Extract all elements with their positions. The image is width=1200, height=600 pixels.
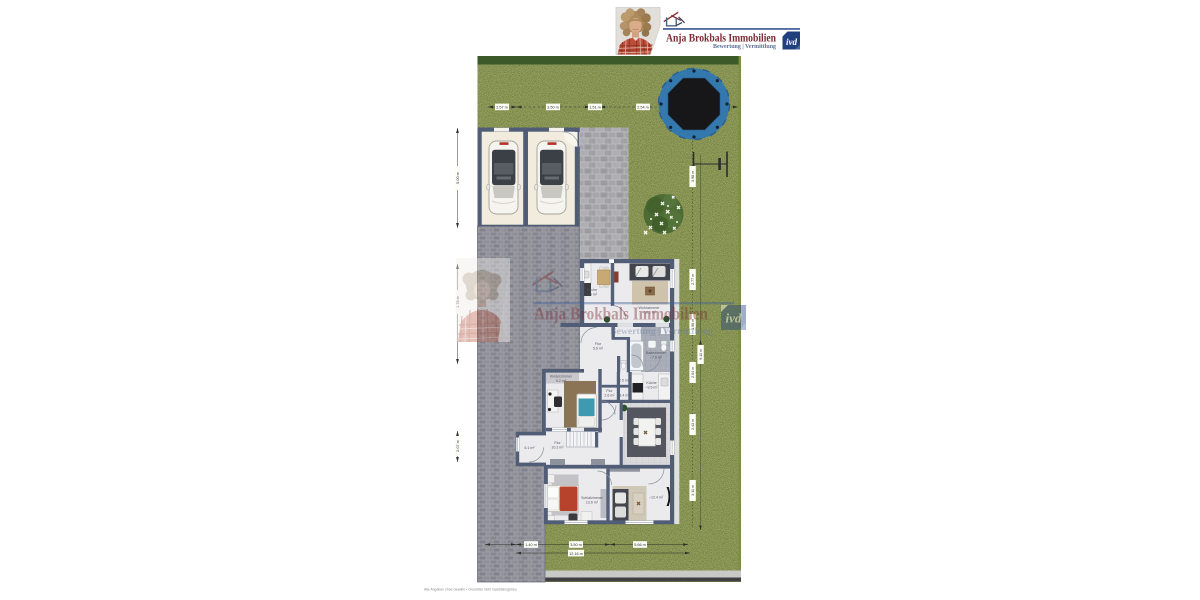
svg-text:Flur: Flur <box>595 342 602 346</box>
svg-text:Anja Brokbals Immobilien: Anja Brokbals Immobilien <box>534 304 708 324</box>
svg-text:Alle Angaben ohne Gewähr • Gru: Alle Angaben ohne Gewähr • Grundriss nic… <box>424 588 517 592</box>
svg-text:Esszimmer: Esszimmer <box>637 449 656 453</box>
svg-text:3.98 m: 3.98 m <box>691 171 695 182</box>
svg-text:~7.6 m²: ~7.6 m² <box>650 355 663 359</box>
svg-text:Flur: Flur <box>606 389 613 393</box>
svg-text:5.66 m: 5.66 m <box>634 543 646 547</box>
svg-text:ivd: ivd <box>726 311 742 326</box>
svg-text:Bewertung | Vermittlung: Bewertung | Vermittlung <box>610 326 713 337</box>
svg-text:ivd: ivd <box>786 37 797 47</box>
svg-text:Schlafzimmer: Schlafzimmer <box>581 496 604 500</box>
svg-text:3.50 m: 3.50 m <box>547 106 559 110</box>
svg-text:3.11 m: 3.11 m <box>691 485 695 496</box>
svg-text:~11.5 m²: ~11.5 m² <box>638 453 653 457</box>
svg-text:7.5 m²: 7.5 m² <box>587 292 598 296</box>
svg-text:2.04 m: 2.04 m <box>691 367 695 378</box>
svg-text:~12.4 m²: ~12.4 m² <box>649 496 664 500</box>
svg-text:12.16 m: 12.16 m <box>569 552 583 556</box>
svg-text:1.51 m: 1.51 m <box>589 106 601 110</box>
svg-text:2.77 m: 2.77 m <box>691 274 695 285</box>
svg-text:Küche: Küche <box>587 288 597 292</box>
svg-text:5.6 m²: 5.6 m² <box>593 346 604 350</box>
svg-text:~9.5 m²: ~9.5 m² <box>645 385 658 389</box>
svg-text:9.11 m: 9.11 m <box>699 349 703 360</box>
svg-text:Bewertung | Vermittlung: Bewertung | Vermittlung <box>713 43 777 50</box>
svg-text:1.40 m: 1.40 m <box>525 543 537 547</box>
svg-text:10.2 m²: 10.2 m² <box>551 445 564 449</box>
svg-text:Flur: Flur <box>554 441 561 445</box>
svg-text:2.6 m²: 2.6 m² <box>604 393 615 397</box>
svg-text:2.43 m: 2.43 m <box>691 419 695 430</box>
svg-text:Badezimmer: Badezimmer <box>646 351 667 355</box>
svg-text:5.00 m: 5.00 m <box>456 172 460 184</box>
svg-text:2.5 m²: 2.5 m² <box>619 379 630 383</box>
svg-text:3.4 m²: 3.4 m² <box>619 394 630 398</box>
svg-text:3.50 m: 3.50 m <box>570 543 582 547</box>
svg-text:Kinderzimmer: Kinderzimmer <box>550 375 573 379</box>
svg-text:5.1 m²: 5.1 m² <box>524 446 535 450</box>
svg-text:2.54 m: 2.54 m <box>637 106 649 110</box>
svg-text:2.07 m: 2.07 m <box>456 440 460 452</box>
svg-text:Küche: Küche <box>646 381 656 385</box>
svg-text:2.57 m: 2.57 m <box>496 106 508 110</box>
svg-text:9.2 m²: 9.2 m² <box>556 379 567 383</box>
svg-text:13.6 m²: 13.6 m² <box>586 500 599 504</box>
